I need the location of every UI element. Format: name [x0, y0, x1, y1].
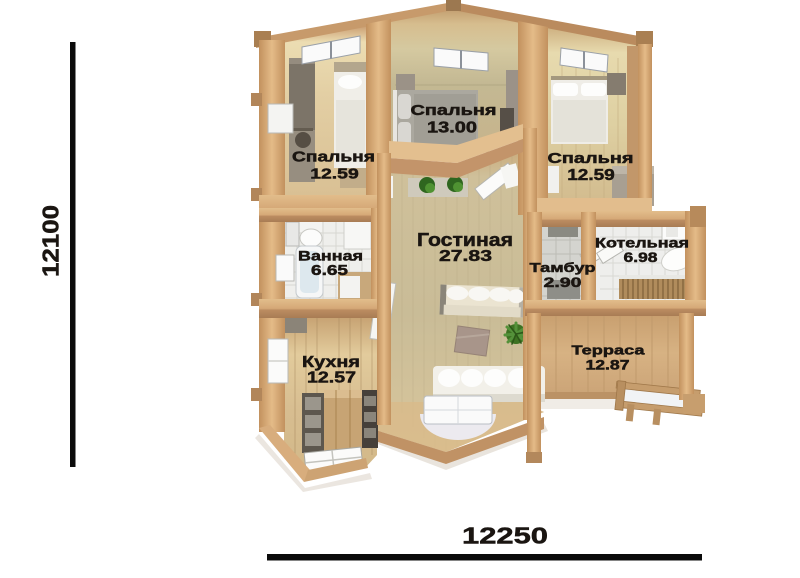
svg-text:Гостиная: Гостиная: [417, 230, 513, 250]
svg-text:Котельная: Котельная: [595, 236, 689, 251]
svg-text:Ванная: Ванная: [298, 248, 363, 264]
svg-text:Терраса: Терраса: [572, 343, 646, 358]
svg-text:12250: 12250: [462, 523, 548, 549]
svg-text:Кухня: Кухня: [302, 354, 360, 371]
svg-text:12.57: 12.57: [307, 370, 356, 387]
svg-text:12.59: 12.59: [310, 166, 359, 183]
svg-text:13.00: 13.00: [427, 120, 477, 137]
svg-text:Спальня: Спальня: [292, 150, 375, 166]
svg-text:Спальня: Спальня: [411, 103, 497, 119]
svg-text:12.87: 12.87: [586, 357, 630, 373]
svg-text:12100: 12100: [38, 205, 64, 277]
svg-text:6.65: 6.65: [311, 263, 348, 279]
svg-text:6.98: 6.98: [624, 250, 659, 265]
svg-text:Тамбур: Тамбур: [530, 260, 596, 275]
svg-text:27.83: 27.83: [439, 248, 493, 265]
svg-text:Спальня: Спальня: [548, 151, 634, 167]
svg-text:12.59: 12.59: [567, 167, 615, 184]
svg-text:2.90: 2.90: [544, 275, 582, 290]
